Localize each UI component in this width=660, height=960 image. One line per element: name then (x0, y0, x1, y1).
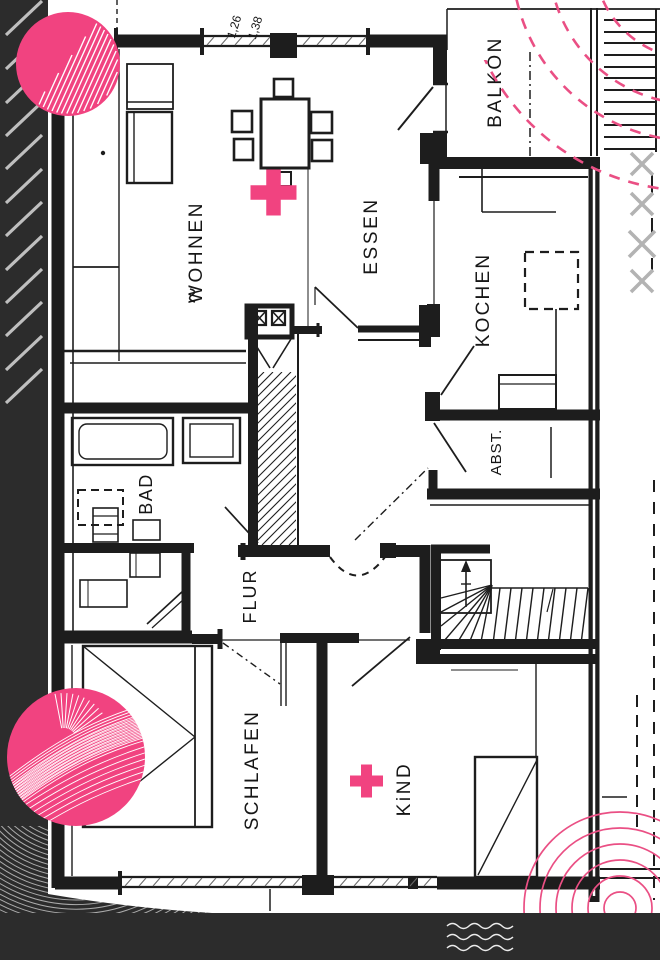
svg-text:BAD: BAD (136, 473, 156, 515)
svg-text:ESSEN: ESSEN (361, 197, 382, 274)
svg-text:WOHNEN: WOHNEN (186, 201, 207, 303)
svg-text:FLUR: FLUR (240, 568, 260, 623)
svg-text:KOCHEN: KOCHEN (473, 253, 494, 348)
svg-text:SCHLAFEN: SCHLAFEN (242, 710, 263, 831)
svg-text:BALKON: BALKON (485, 36, 506, 128)
svg-text:ABST.: ABST. (488, 429, 505, 476)
svg-text:KiND: KiND (394, 762, 415, 817)
